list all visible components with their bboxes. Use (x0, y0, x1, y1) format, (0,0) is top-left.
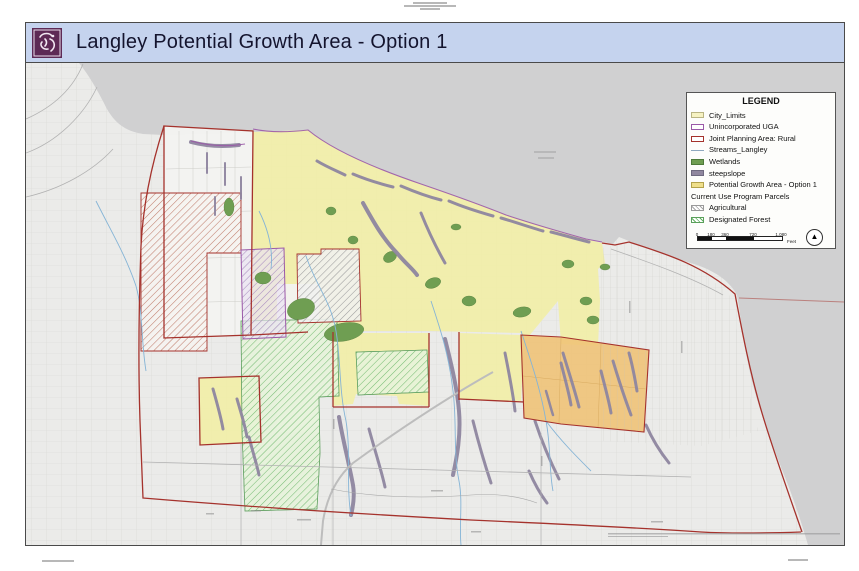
legend-title: LEGEND (691, 96, 831, 108)
legend-item-wetlands: Wetlands (691, 156, 831, 168)
microtext-bottom-right (788, 559, 808, 561)
legend-item-steepslope: steepslope (691, 168, 831, 180)
uga-swatch-icon (691, 124, 704, 130)
microtext-top-line3 (420, 8, 440, 10)
north-arrow-icon: ▲ (806, 229, 823, 246)
growth-area-swatch-icon (691, 182, 704, 188)
scalebar (697, 236, 783, 241)
microtext-top-line1 (413, 2, 447, 4)
microtext-bottom-left (42, 560, 74, 562)
legend-box: LEGEND City_Limits Unincorporated UGA Jo… (686, 92, 836, 249)
legend-item-streams: Streams_Langley (691, 144, 831, 156)
scale-area: 0 180 360 720 1,080 Feet ▲ (691, 228, 831, 246)
title-bar: Langley Potential Growth Area - Option 1 (25, 22, 845, 63)
wetland-swatch-icon (691, 159, 704, 165)
legend-item-growth-area: Potential Growth Area - Option 1 (691, 179, 831, 191)
agricultural-swatch-icon (691, 205, 704, 211)
legend-group-current-use: Current Use Program Parcels (691, 191, 831, 203)
langley-crest-logo-icon (32, 28, 62, 58)
forest-swatch-icon (691, 217, 704, 223)
legend-item-designated-forest: Designated Forest (691, 214, 831, 226)
legend-item-jpa: Joint Planning Area: Rural (691, 133, 831, 145)
map-title: Langley Potential Growth Area - Option 1 (76, 31, 448, 54)
legend-item-agricultural: Agricultural (691, 202, 831, 214)
scale-unit: Feet (787, 236, 796, 248)
steepslope-swatch-icon (691, 170, 704, 176)
city-limits-swatch-icon (691, 112, 704, 118)
legend-item-city-limits: City_Limits (691, 110, 831, 122)
jpa-swatch-icon (691, 136, 704, 142)
microtext-top-line2 (404, 5, 456, 7)
stream-swatch-icon (691, 150, 704, 151)
legend-item-uga: Unincorporated UGA (691, 121, 831, 133)
uga-hatched-area (241, 248, 286, 339)
